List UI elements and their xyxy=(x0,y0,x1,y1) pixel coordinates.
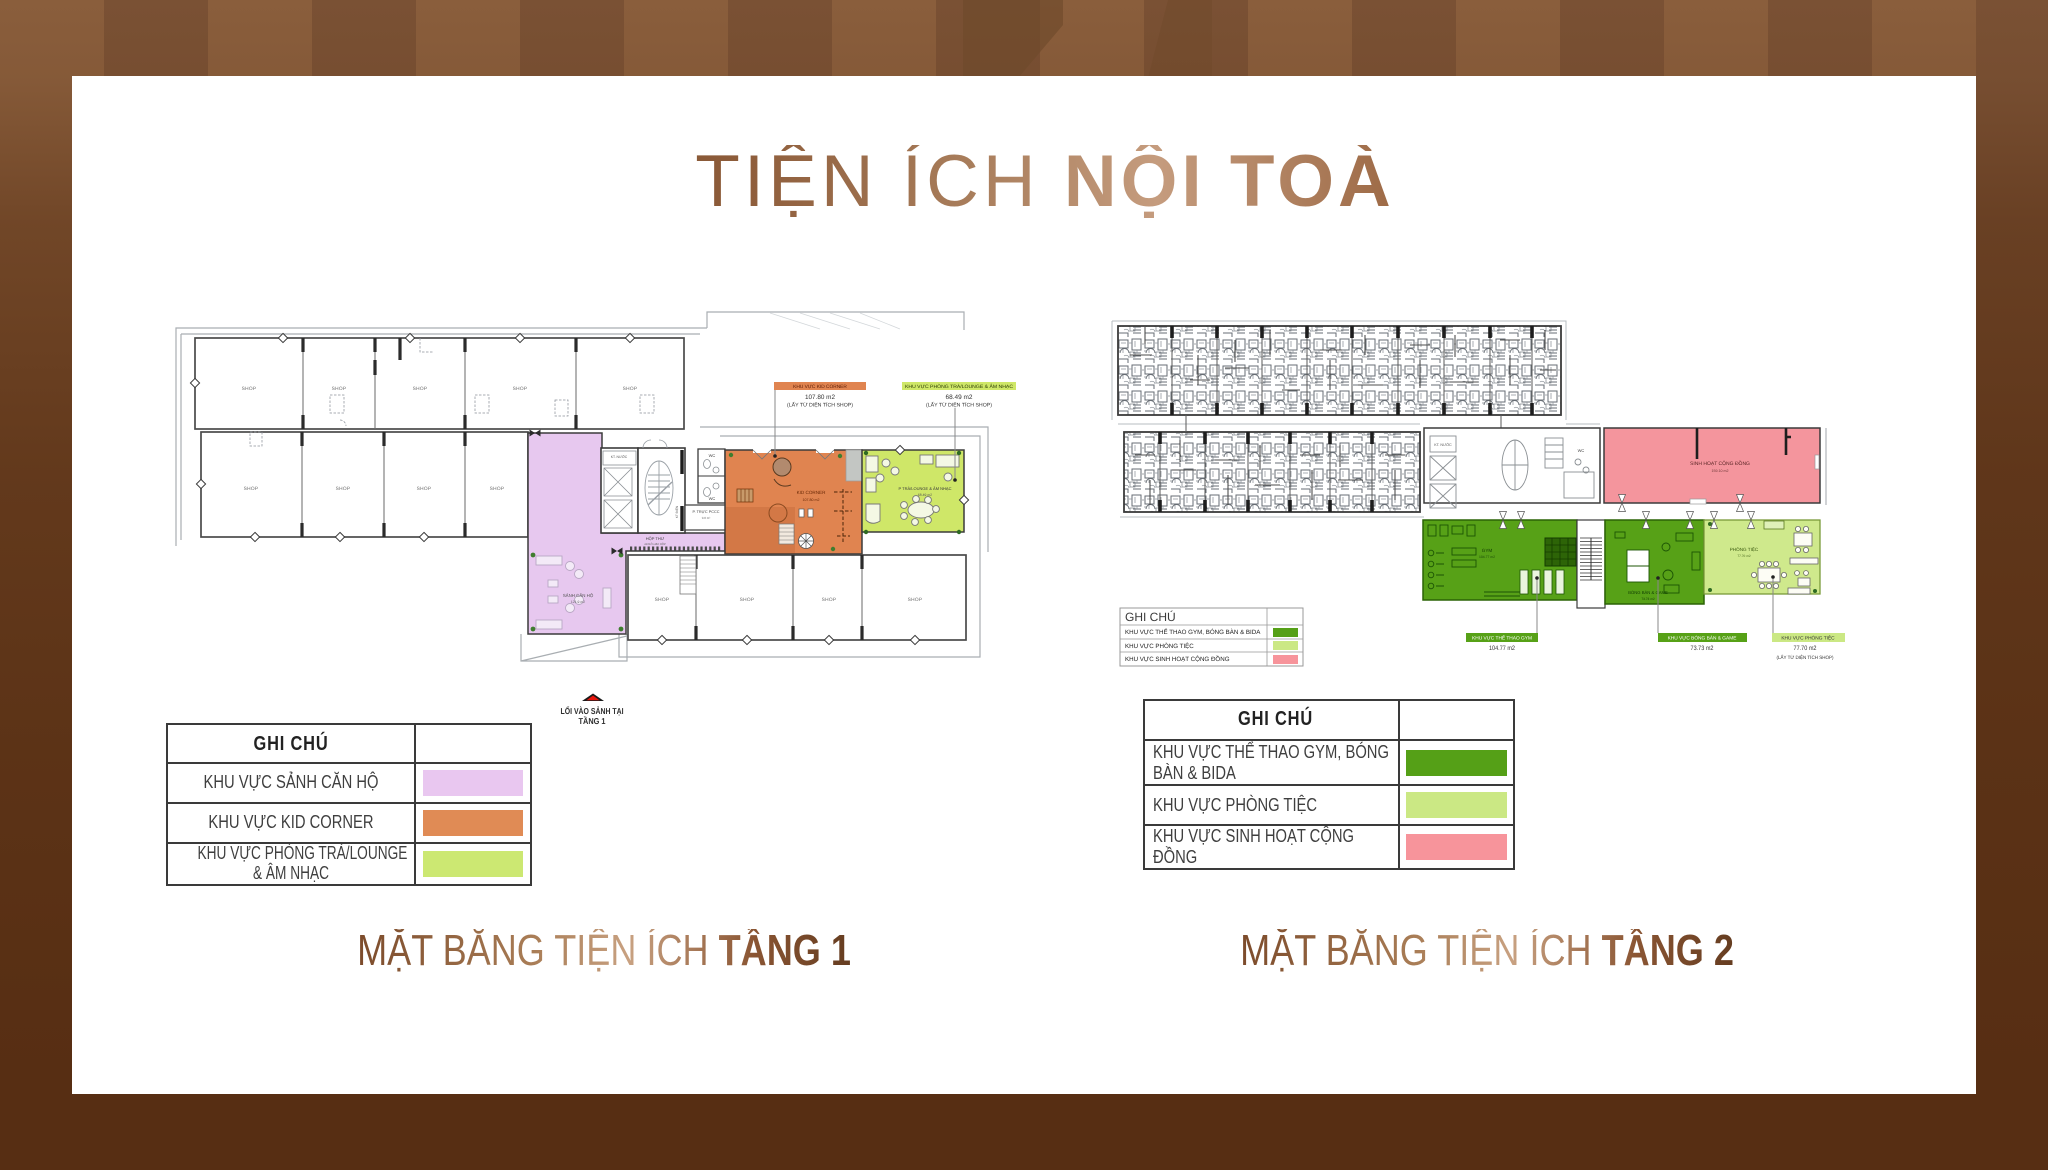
svg-text:GYM: GYM xyxy=(1482,548,1493,553)
svg-text:BÓNG BÀN & GAME: BÓNG BÀN & GAME xyxy=(1628,590,1668,595)
svg-text:KT ĐIỆN: KT ĐIỆN xyxy=(675,505,679,518)
svg-text:KID CORNER: KID CORNER xyxy=(797,490,827,495)
svg-text:SHOP: SHOP xyxy=(417,486,432,492)
svg-text:77.70 m2: 77.70 m2 xyxy=(1794,645,1817,652)
svg-text:KHU VỰC KID CORNER: KHU VỰC KID CORNER xyxy=(793,384,847,390)
svg-text:TẦNG 1: TẦNG 1 xyxy=(579,716,606,726)
svg-text:4161Ô+482 HỘP: 4161Ô+482 HỘP xyxy=(644,542,666,546)
svg-text:P. TRỰC PCCC: P. TRỰC PCCC xyxy=(693,510,720,514)
svg-text:KT. NƯỚC: KT. NƯỚC xyxy=(1434,442,1452,447)
svg-text:(LẤY TỪ DIỆN TÍCH SHOP): (LẤY TỪ DIỆN TÍCH SHOP) xyxy=(926,402,992,409)
svg-text:SHOP: SHOP xyxy=(332,386,347,392)
svg-text:107.80 m2: 107.80 m2 xyxy=(803,498,820,502)
svg-text:104.77 m2: 104.77 m2 xyxy=(1489,645,1515,652)
svg-text:WC: WC xyxy=(709,496,716,501)
svg-text:KHU VỰC PHÒNG TIỆC: KHU VỰC PHÒNG TIỆC xyxy=(1125,642,1194,650)
svg-text:SẢNH CĂN HỘ: SẢNH CĂN HỘ xyxy=(563,593,594,598)
svg-text:SHOP: SHOP xyxy=(490,486,505,492)
svg-text:SHOP: SHOP xyxy=(655,597,670,603)
svg-text:KHU VỰC THỂ THAO GYM: KHU VỰC THỂ THAO GYM xyxy=(1472,635,1532,642)
svg-text:KHU VỰC PHÒNG TRÀ/LOUNGE & ÂM: KHU VỰC PHÒNG TRÀ/LOUNGE & ÂM NHẠC xyxy=(905,383,1014,390)
svg-text:PHÒNG TIỆC: PHÒNG TIỆC xyxy=(1730,546,1759,552)
svg-text:SHOP: SHOP xyxy=(822,597,837,603)
svg-text:SHOP: SHOP xyxy=(740,597,755,603)
svg-text:(LẤY TỪ DIỆN TÍCH SHOP): (LẤY TỪ DIỆN TÍCH SHOP) xyxy=(1777,654,1834,661)
svg-text:KHU VỰC SINH HOẠT CỘNG ĐỒNG: KHU VỰC SINH HOẠT CỘNG ĐỒNG xyxy=(1125,655,1230,663)
svg-text:SHOP: SHOP xyxy=(908,597,923,603)
svg-text:GHI CHÚ: GHI CHÚ xyxy=(1125,610,1176,624)
svg-text:(LẤY TỪ DIỆN TÍCH SHOP): (LẤY TỪ DIỆN TÍCH SHOP) xyxy=(787,402,853,409)
svg-text:107.80 m2: 107.80 m2 xyxy=(805,394,835,401)
svg-text:68.49 m2: 68.49 m2 xyxy=(918,493,932,497)
svg-text:9.0 m²: 9.0 m² xyxy=(702,516,711,520)
svg-text:SHOP: SHOP xyxy=(242,386,257,392)
svg-text:121.9 m2: 121.9 m2 xyxy=(571,600,585,604)
svg-text:SHOP: SHOP xyxy=(336,486,351,492)
svg-text:LỐI VÀO SẢNH TẠI: LỐI VÀO SẢNH TẠI xyxy=(561,706,624,716)
svg-text:159.10 m2: 159.10 m2 xyxy=(1712,469,1729,473)
svg-text:SHOP: SHOP xyxy=(413,386,428,392)
svg-text:SHOP: SHOP xyxy=(244,486,259,492)
svg-text:WC: WC xyxy=(709,453,716,458)
svg-text:KHU VỰC PHÒNG TIỆC: KHU VỰC PHÒNG TIỆC xyxy=(1781,635,1835,642)
svg-text:HỘP THƯ: HỘP THƯ xyxy=(646,536,665,541)
svg-text:P TRÀ/LOUNGE & ÂM NHẠC: P TRÀ/LOUNGE & ÂM NHẠC xyxy=(899,486,952,491)
svg-text:SHOP: SHOP xyxy=(623,386,638,392)
svg-text:104.77 m2: 104.77 m2 xyxy=(1479,555,1495,559)
svg-text:77.70 m2: 77.70 m2 xyxy=(1737,554,1751,558)
svg-text:SHOP: SHOP xyxy=(513,386,528,392)
svg-text:SINH HOẠT CỘNG ĐỒNG: SINH HOẠT CỘNG ĐỒNG xyxy=(1690,460,1750,467)
svg-text:KHU VỰC THỂ THAO GYM, BÓNG BÀN: KHU VỰC THỂ THAO GYM, BÓNG BÀN & BIDA xyxy=(1125,628,1261,636)
svg-text:73.73 m2: 73.73 m2 xyxy=(1691,645,1714,652)
svg-text:73.73 m2: 73.73 m2 xyxy=(1641,597,1655,601)
svg-text:KT. NƯỚC: KT. NƯỚC xyxy=(611,455,628,459)
svg-text:WC: WC xyxy=(1578,448,1585,453)
svg-text:68.49 m2: 68.49 m2 xyxy=(946,394,973,401)
svg-text:KHU VỰC BÓNG BÀN & GAME: KHU VỰC BÓNG BÀN & GAME xyxy=(1668,635,1737,642)
